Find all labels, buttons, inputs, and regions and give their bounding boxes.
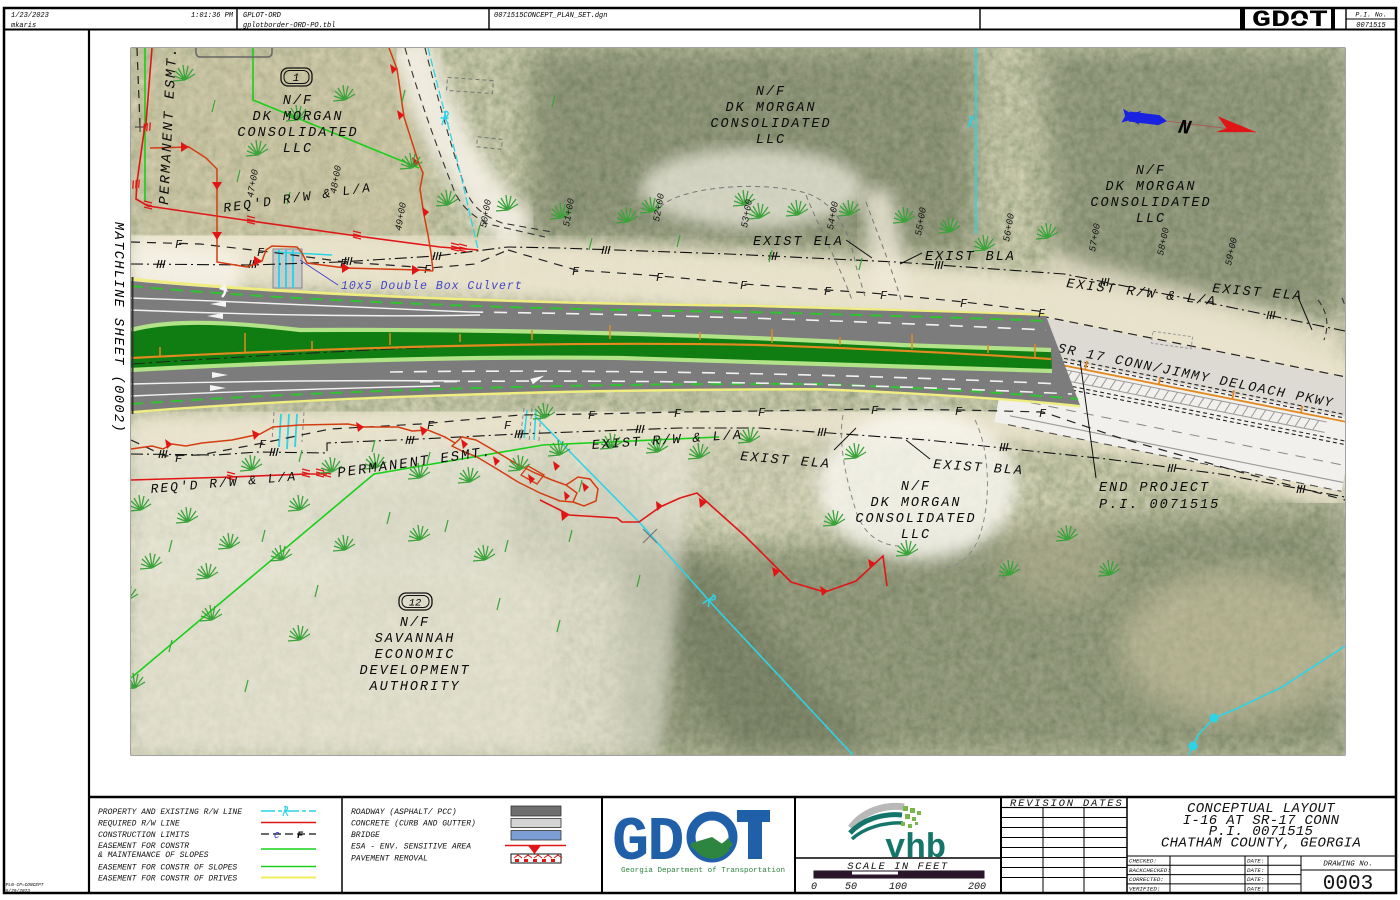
svg-text:F: F <box>175 452 183 466</box>
svg-text:0: 0 <box>811 882 817 893</box>
svg-text:N/F: N/F <box>283 94 313 109</box>
svg-text:CORRECTED:: CORRECTED: <box>1129 876 1164 883</box>
svg-text:N/F: N/F <box>1136 164 1166 179</box>
svg-text:BACKCHECKED:: BACKCHECKED: <box>1129 867 1171 874</box>
svg-text:AUTHORITY: AUTHORITY <box>369 680 461 695</box>
svg-text:F: F <box>824 285 832 299</box>
svg-text:DATE:: DATE: <box>1247 876 1264 883</box>
svg-text:CONSOLIDATED: CONSOLIDATED <box>855 512 976 527</box>
svg-text:ROADWAY (ASPHALT/ PCC): ROADWAY (ASPHALT/ PCC) <box>351 808 457 817</box>
svg-text:05/29/2023: 05/29/2023 <box>3 888 30 894</box>
svg-text:F: F <box>960 297 968 311</box>
svg-text:MATCHLINE SHEET (0002): MATCHLINE SHEET (0002) <box>110 222 125 433</box>
svg-text:F: F <box>504 419 512 433</box>
svg-text:DATE:: DATE: <box>1247 867 1264 874</box>
svg-text:EXIST ELA: EXIST ELA <box>753 235 844 250</box>
svg-text:12: 12 <box>409 598 422 610</box>
svg-text:REVISION DATES: REVISION DATES <box>1010 798 1123 810</box>
svg-text:F: F <box>175 238 183 252</box>
svg-text:CONSTRUCTION LIMITS: CONSTRUCTION LIMITS <box>98 831 189 840</box>
svg-text:F: F <box>674 407 682 421</box>
svg-text:0071515: 0071515 <box>1356 22 1386 30</box>
svg-text:F: F <box>297 831 304 842</box>
svg-text:100: 100 <box>889 882 907 893</box>
svg-text:CONSOLIDATED: CONSOLIDATED <box>1090 196 1211 211</box>
svg-text:CONSOLIDATED: CONSOLIDATED <box>710 117 831 132</box>
svg-text:F: F <box>588 409 596 423</box>
svg-text:10x5 Double Box Culvert: 10x5 Double Box Culvert <box>341 280 523 293</box>
svg-text:BRIDGE: BRIDGE <box>351 831 380 840</box>
svg-text:F: F <box>955 405 963 419</box>
svg-text:EASEMENT FOR CONSTR: EASEMENT FOR CONSTR <box>98 842 189 851</box>
svg-text:P.I. No.: P.I. No. <box>1355 12 1386 19</box>
svg-text:& MAINTENANCE OF SLOPES: & MAINTENANCE OF SLOPES <box>98 851 209 860</box>
svg-text:gplotborder-ORD-PO.tbl: gplotborder-ORD-PO.tbl <box>243 22 335 30</box>
svg-text:EXIST BLA: EXIST BLA <box>925 250 1016 265</box>
svg-text:GDOT: GDOT <box>1252 7 1328 33</box>
svg-text:REQUIRED R/W LINE: REQUIRED R/W LINE <box>98 820 180 829</box>
svg-text:P.I. 0071515: P.I. 0071515 <box>1099 498 1220 513</box>
svg-text:F: F <box>740 279 748 293</box>
svg-text:F: F <box>656 271 664 285</box>
svg-text:DK MORGAN: DK MORGAN <box>726 101 817 116</box>
svg-text:F: F <box>572 265 580 279</box>
svg-text:F: F <box>880 289 888 303</box>
svg-text:ECONOMIC: ECONOMIC <box>375 648 456 663</box>
svg-text:PAVEMENT REMOVAL: PAVEMENT REMOVAL <box>351 855 428 864</box>
svg-text:LLC: LLC <box>1136 212 1166 227</box>
svg-text:LLC: LLC <box>283 142 313 157</box>
svg-text:1/23/2023: 1/23/2023 <box>11 12 49 20</box>
svg-text:0003: 0003 <box>1323 873 1373 896</box>
svg-text:ESA - ENV. SENSITIVE AREA: ESA - ENV. SENSITIVE AREA <box>351 843 471 852</box>
svg-text:END PROJECT: END PROJECT <box>1099 481 1210 496</box>
svg-text:F: F <box>871 404 879 418</box>
svg-text:mkaris: mkaris <box>11 22 36 30</box>
svg-text:0071515CONCEPT_PLAN_SET.dgn: 0071515CONCEPT_PLAN_SET.dgn <box>494 12 607 20</box>
svg-text:F: F <box>1039 407 1047 421</box>
svg-text:C: C <box>274 831 280 841</box>
svg-text:LLC: LLC <box>756 133 786 148</box>
svg-text:SAVANNAH: SAVANNAH <box>375 632 456 647</box>
svg-text:DATE:: DATE: <box>1247 858 1264 865</box>
svg-text:GPLN-CP=CONCEPT: GPLN-CP=CONCEPT <box>3 882 44 888</box>
svg-text:DK MORGAN: DK MORGAN <box>1106 180 1197 195</box>
svg-text:1:01:36 PM: 1:01:36 PM <box>191 12 234 20</box>
svg-text:F: F <box>758 406 766 420</box>
svg-text:F: F <box>1038 307 1046 321</box>
svg-text:GPLOT-ORD: GPLOT-ORD <box>243 12 282 20</box>
svg-text:CHATHAM COUNTY, GEORGIA: CHATHAM COUNTY, GEORGIA <box>1161 836 1361 852</box>
svg-text:VERIFIED:: VERIFIED: <box>1129 885 1160 892</box>
svg-text:Georgia Department of Transp: Georgia Department of Transportation <box>621 867 785 875</box>
svg-text:DK MORGAN: DK MORGAN <box>871 496 962 511</box>
svg-text:DATE:: DATE: <box>1247 885 1264 892</box>
svg-text:EASEMENT FOR CONSTR OF SLOPES: EASEMENT FOR CONSTR OF SLOPES <box>98 864 237 873</box>
svg-text:1: 1 <box>293 73 300 85</box>
svg-text:PROPERTY AND EXISTING R/W LINE: PROPERTY AND EXISTING R/W LINE <box>98 808 242 817</box>
svg-text:EASEMENT FOR CONSTR OF DRIVES: EASEMENT FOR CONSTR OF DRIVES <box>98 875 237 884</box>
svg-text:DRAWING No.: DRAWING No. <box>1323 861 1373 869</box>
svg-text:DEVELOPMENT: DEVELOPMENT <box>359 664 470 679</box>
svg-text:N/F: N/F <box>901 480 931 495</box>
svg-text:DK MORGAN: DK MORGAN <box>253 110 344 125</box>
svg-text:CONSOLIDATED: CONSOLIDATED <box>237 126 358 141</box>
svg-text:CONCRETE (CURB AND GUTTER): CONCRETE (CURB AND GUTTER) <box>351 820 476 829</box>
svg-text:200: 200 <box>968 882 986 893</box>
svg-text:N/F: N/F <box>756 85 786 100</box>
svg-text:F: F <box>259 438 267 452</box>
svg-text:N/F: N/F <box>400 616 430 631</box>
svg-text:CHECKED:: CHECKED: <box>1129 858 1157 865</box>
svg-text:50: 50 <box>845 882 857 893</box>
svg-text:LLC: LLC <box>901 528 931 543</box>
